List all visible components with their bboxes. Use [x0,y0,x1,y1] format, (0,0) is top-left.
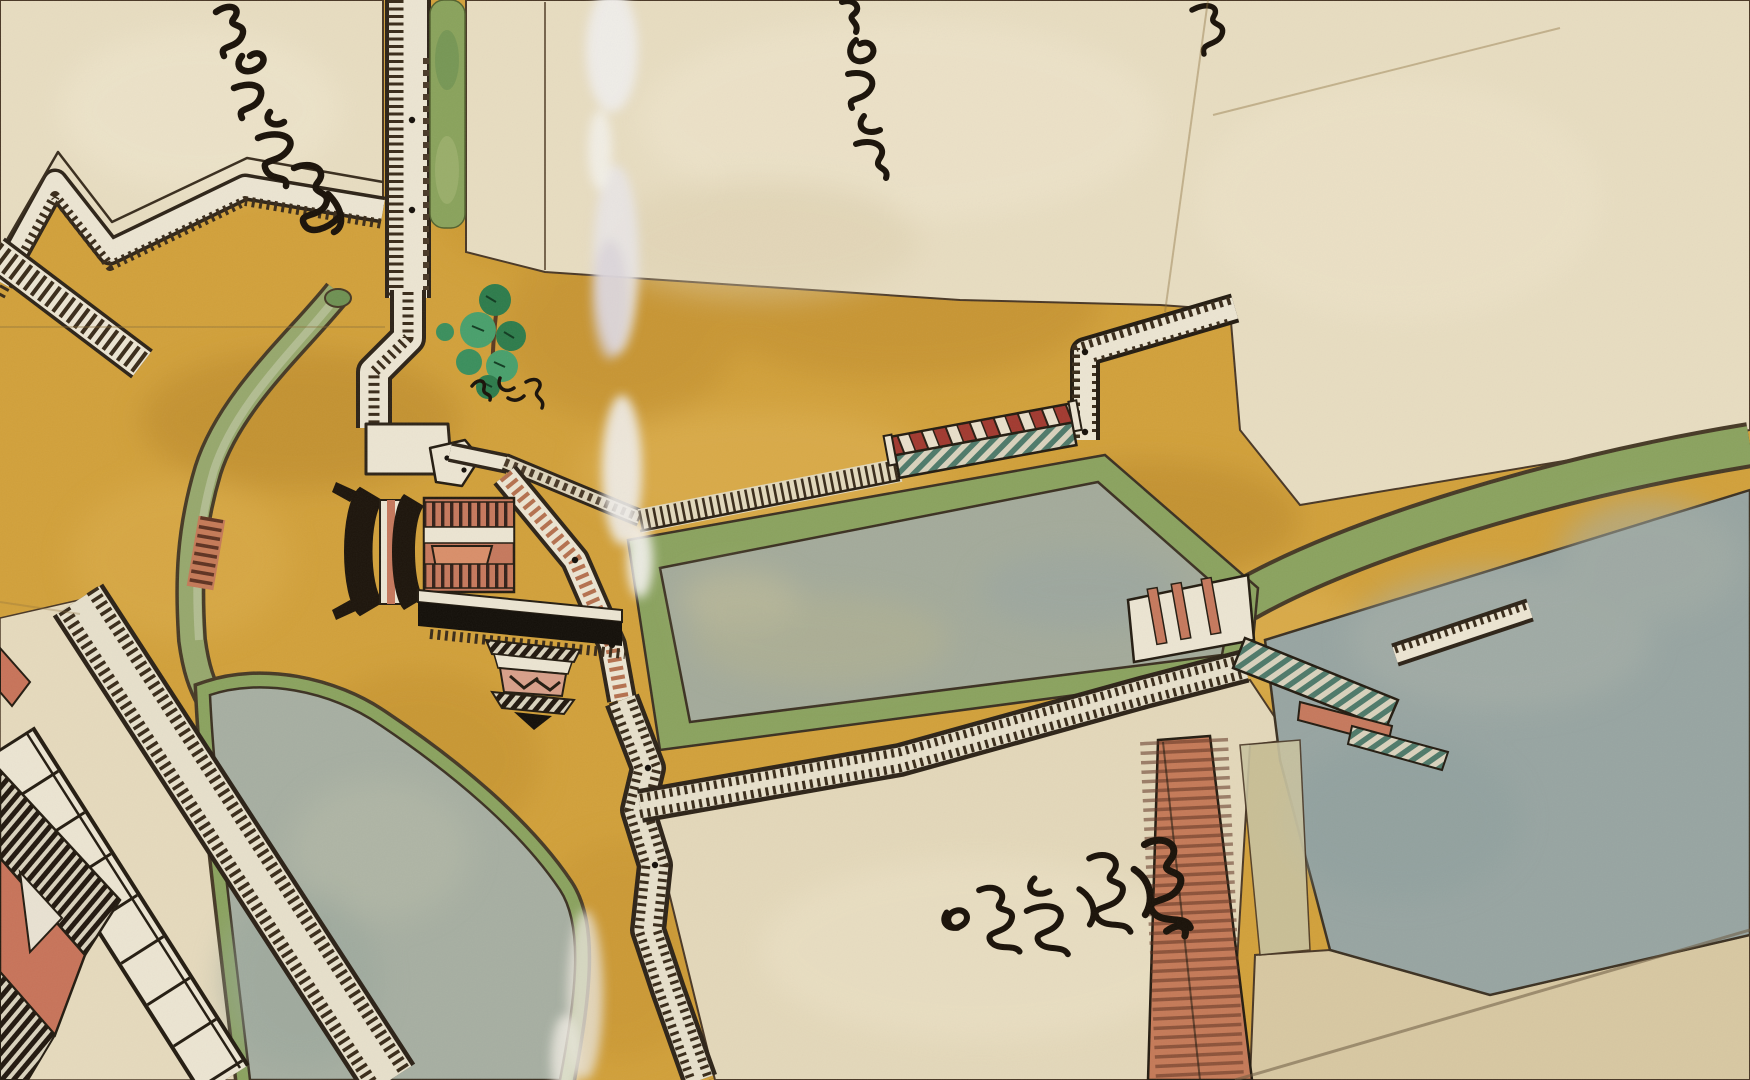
painted-map [0,0,1750,1080]
map-canvas: Edo-period painted castle map (detail) [0,0,1750,1080]
paper-grain-overlay [0,0,1750,1080]
